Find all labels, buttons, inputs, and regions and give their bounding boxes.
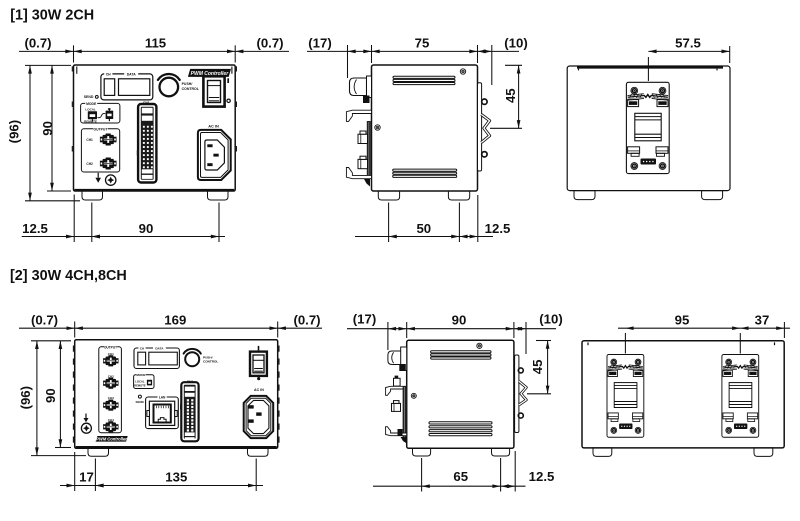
svg-text:50: 50: [416, 221, 431, 236]
svg-text:169: 169: [164, 312, 186, 327]
svg-text:115: 115: [145, 36, 166, 51]
svg-text:(17): (17): [308, 36, 331, 51]
svg-text:OUTPUT: OUTPUT: [104, 346, 117, 350]
svg-text:MODE: MODE: [137, 373, 146, 377]
svg-text:REMOTE: REMOTE: [134, 384, 146, 388]
svg-text:90: 90: [40, 121, 55, 136]
svg-text:SEND: SEND: [136, 400, 145, 404]
svg-text:OUTPUT: OUTPUT: [94, 127, 109, 131]
svg-text:[1] 30W 2CH: [1] 30W 2CH: [10, 7, 94, 23]
svg-text:(10): (10): [504, 36, 527, 51]
svg-text:PWM Controller: PWM Controller: [96, 437, 127, 442]
svg-text:SEND: SEND: [84, 95, 94, 99]
svg-text:DATA: DATA: [155, 347, 164, 351]
svg-text:(10): (10): [539, 311, 562, 326]
svg-text:90: 90: [452, 312, 467, 327]
svg-text:(96): (96): [6, 120, 21, 143]
svg-text:AC IN: AC IN: [208, 123, 219, 128]
svg-text:CONTROL: CONTROL: [203, 360, 218, 364]
svg-text:(0.7): (0.7): [24, 36, 51, 51]
svg-text:65: 65: [453, 469, 468, 484]
svg-text:12.5: 12.5: [485, 221, 511, 236]
svg-text:LOCAL: LOCAL: [135, 379, 145, 383]
svg-text:37: 37: [755, 312, 770, 327]
svg-text:LAN: LAN: [159, 395, 166, 399]
svg-text:REMOTE: REMOTE: [84, 119, 97, 123]
svg-text:CH: CH: [106, 73, 111, 77]
svg-text:45: 45: [503, 88, 518, 103]
svg-text:75: 75: [415, 36, 430, 51]
svg-text:PUSH/: PUSH/: [182, 82, 193, 86]
svg-text:(0.7): (0.7): [31, 312, 58, 327]
svg-text:135: 135: [165, 469, 187, 484]
svg-text:57.5: 57.5: [675, 36, 701, 51]
svg-text:CONTROL: CONTROL: [182, 87, 200, 91]
svg-text:12.5: 12.5: [529, 469, 555, 484]
svg-text:CH1: CH1: [86, 138, 93, 142]
svg-text:95: 95: [675, 312, 690, 327]
svg-text:(0.7): (0.7): [256, 36, 283, 51]
svg-text:LOCAL: LOCAL: [85, 108, 95, 112]
svg-text:(0.7): (0.7): [293, 312, 320, 327]
svg-text:CH2: CH2: [86, 162, 93, 166]
svg-text:(96): (96): [18, 386, 33, 409]
svg-text:(17): (17): [353, 311, 376, 326]
svg-text:90: 90: [43, 388, 58, 403]
svg-text:[2] 30W 4CH,8CH: [2] 30W 4CH,8CH: [10, 268, 127, 284]
svg-text:45: 45: [530, 360, 545, 375]
svg-text:CH: CH: [140, 347, 145, 351]
svg-text:12.5: 12.5: [22, 221, 48, 236]
svg-text:AC IN: AC IN: [254, 388, 264, 392]
svg-text:DATA: DATA: [127, 73, 136, 77]
svg-text:90: 90: [139, 221, 154, 236]
svg-text:MODE: MODE: [86, 102, 97, 106]
svg-text:17: 17: [79, 469, 94, 484]
